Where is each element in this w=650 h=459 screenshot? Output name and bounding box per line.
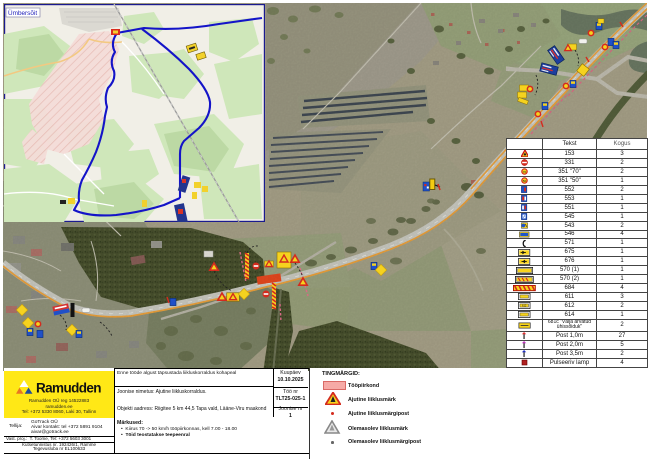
svg-text:50: 50 — [523, 179, 527, 183]
svg-text:70: 70 — [523, 170, 527, 174]
svg-text:Ramudden: Ramudden — [36, 381, 101, 395]
svg-text:612: 612 — [522, 304, 527, 308]
